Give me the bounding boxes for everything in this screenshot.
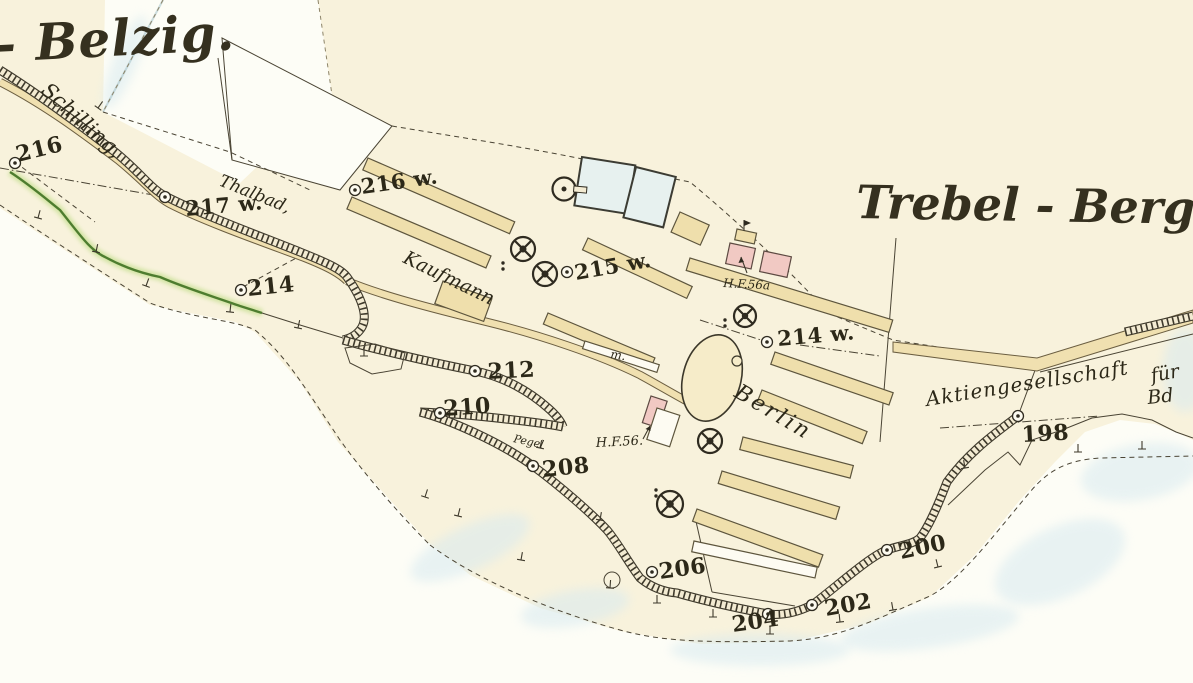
elevation-label-212: 212 xyxy=(487,357,536,385)
historic-map-svg: - Belzig. Trebel - Berg Schilling, Thalb… xyxy=(0,0,1193,683)
region-title-trebel-berg: Trebel - Berg xyxy=(856,175,1193,235)
parcel-label-hf56a: H.F.56a xyxy=(722,276,771,292)
parcel-label-hf56: H.F.56. xyxy=(594,434,643,452)
elevation-label-214: 214 xyxy=(246,271,296,302)
elevation-label-208: 208 xyxy=(541,452,591,483)
region-title-belzig: - Belzig. xyxy=(0,3,236,74)
map-canvas[interactable]: - Belzig. Trebel - Berg Schilling, Thalb… xyxy=(0,0,1193,683)
place-label-m: m. xyxy=(610,347,627,363)
place-label-bd: Bd xyxy=(1145,384,1174,409)
elevation-label-210: 210 xyxy=(443,393,492,422)
elevation-label-198: 198 xyxy=(1021,420,1070,448)
